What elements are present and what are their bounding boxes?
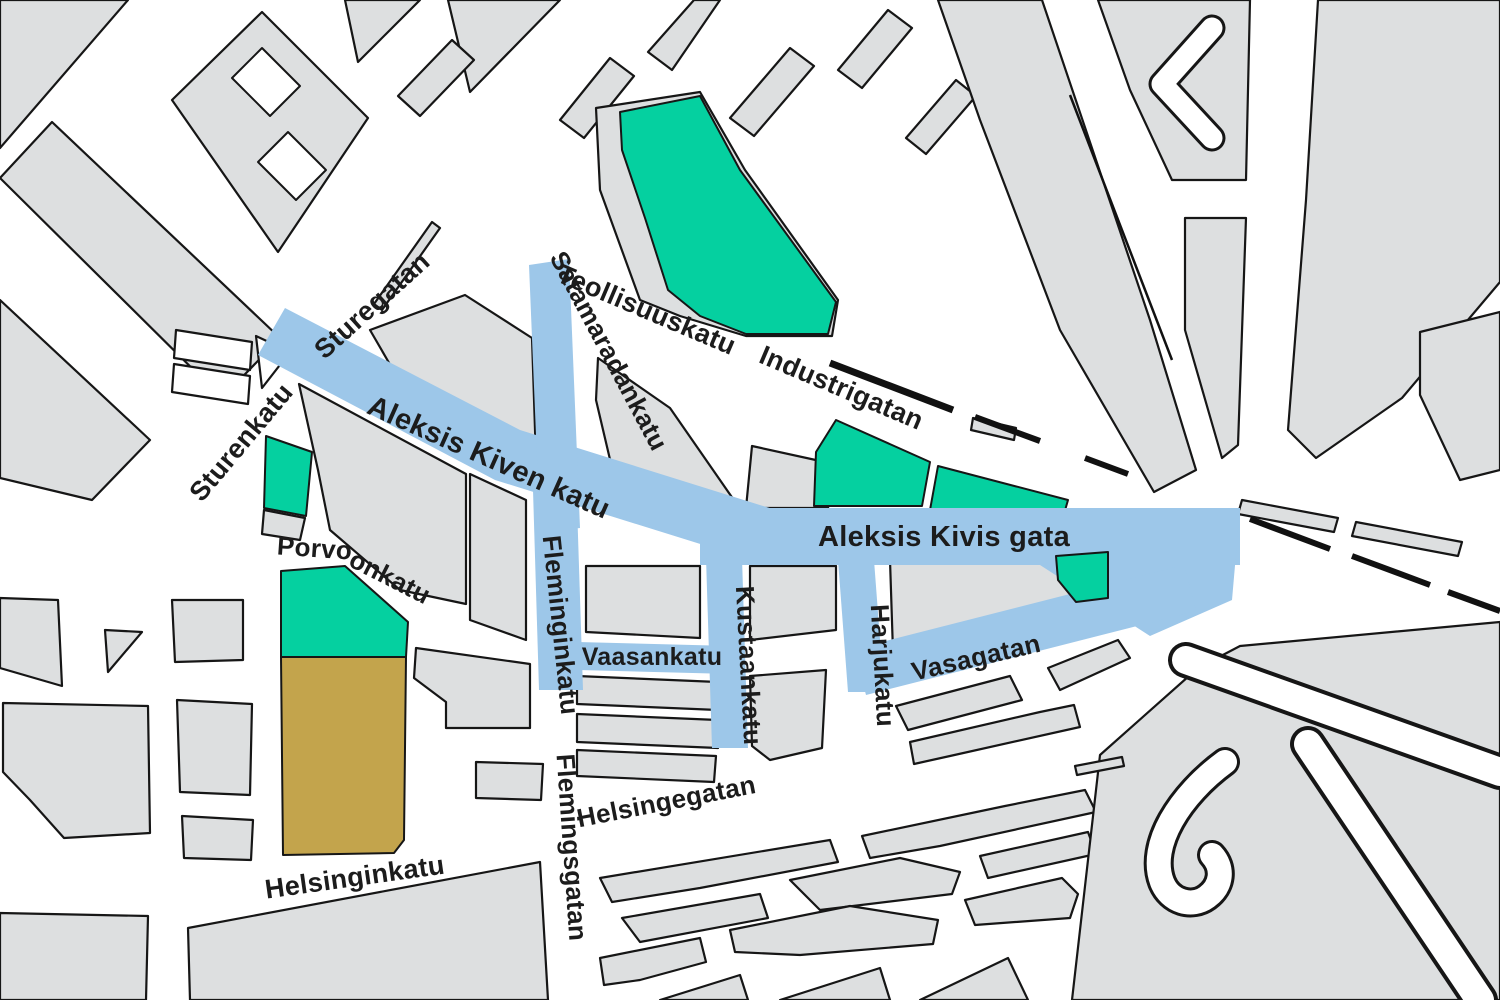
- block: [648, 0, 720, 70]
- block: [920, 958, 1028, 1000]
- blocks-layer: [0, 0, 1500, 1000]
- block: [0, 0, 128, 148]
- street-label-flemingsgatan: Flemingsgatan: [550, 753, 593, 942]
- block: [577, 676, 718, 710]
- block: [177, 700, 252, 795]
- block: [577, 750, 716, 782]
- block: [0, 300, 150, 500]
- block: [470, 474, 526, 640]
- block: [414, 648, 530, 728]
- block: [577, 714, 718, 748]
- block: [600, 938, 706, 985]
- block: [182, 816, 253, 860]
- sports-field: [281, 657, 406, 855]
- block: [1185, 218, 1246, 458]
- street-label-vaasankatu: Vaasankatu: [582, 643, 723, 671]
- block: [1420, 312, 1500, 480]
- block: [172, 12, 368, 252]
- block: [780, 968, 890, 1000]
- block: [906, 80, 976, 154]
- block: [586, 566, 700, 638]
- street-label-harjukatu: Harjukatu: [865, 604, 901, 728]
- railway-segment: [1448, 592, 1500, 611]
- block: [660, 975, 748, 1000]
- city-map: SturegatanSturenkatuTeollisuuskatuSatama…: [0, 0, 1500, 1000]
- block: [105, 630, 142, 672]
- street-label-aleksis-kivis-gata: Aleksis Kivis gata: [818, 521, 1071, 553]
- block: [398, 40, 474, 116]
- block: [3, 703, 150, 838]
- block: [730, 48, 814, 136]
- block: [965, 878, 1078, 925]
- city-map-screenshot: SturegatanSturenkatuTeollisuuskatuSatama…: [0, 0, 1500, 1000]
- park-small-west: [264, 436, 312, 516]
- street-label-porvoonkatu-a: Porvo: [276, 530, 353, 565]
- park-strip-east: [930, 466, 1068, 514]
- block: [172, 600, 243, 662]
- block: [476, 762, 543, 800]
- block: [1238, 500, 1338, 532]
- block: [345, 0, 420, 62]
- block: [838, 10, 912, 88]
- block: [980, 832, 1096, 878]
- block: [448, 0, 560, 92]
- railway-segment: [1085, 458, 1128, 474]
- block: [1048, 640, 1130, 690]
- railway-segment: [1352, 556, 1430, 585]
- block: [0, 913, 148, 1000]
- block: [0, 598, 62, 686]
- block: [1352, 522, 1462, 556]
